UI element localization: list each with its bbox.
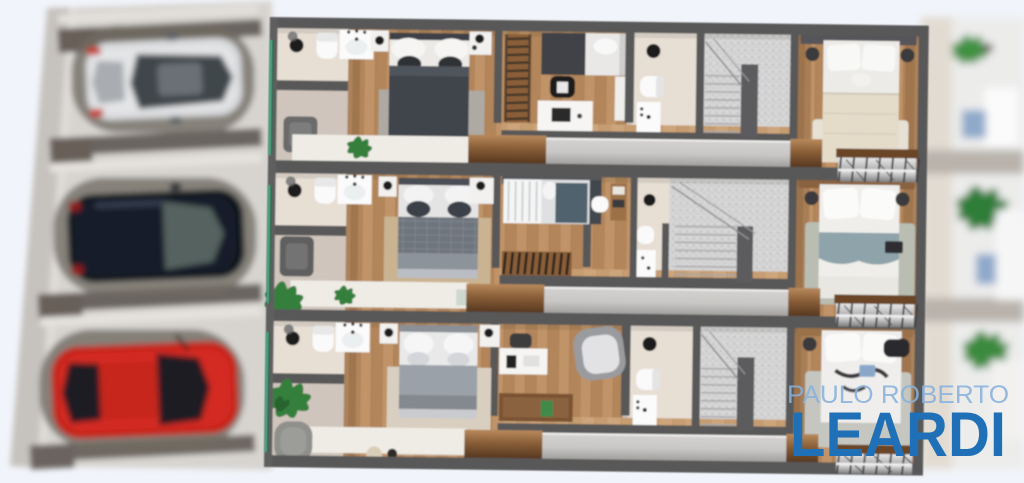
svg-text:LEARDI: LEARDI <box>790 400 1006 470</box>
